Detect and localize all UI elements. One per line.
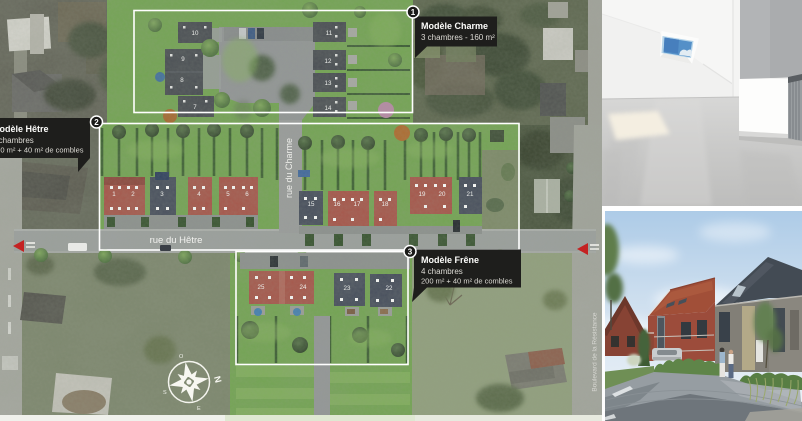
svg-text:Boulevard de la Résistance: Boulevard de la Résistance (592, 312, 599, 392)
svg-text:Modèle Frêne: Modèle Frêne (421, 255, 479, 265)
svg-text:E: E (197, 406, 201, 412)
svg-text:rue du Charme: rue du Charme (284, 138, 294, 198)
svg-text:rue du Hêtre: rue du Hêtre (150, 235, 203, 246)
svg-text:200 m² + 40 m² de combles: 200 m² + 40 m² de combles (0, 146, 84, 155)
svg-text:4 chambres: 4 chambres (421, 267, 463, 276)
svg-text:200 m² + 40 m² de combles: 200 m² + 40 m² de combles (421, 277, 513, 286)
svg-text:4 chambres: 4 chambres (0, 136, 34, 145)
svg-text:2: 2 (94, 118, 99, 127)
svg-text:S: S (163, 390, 167, 396)
svg-text:Modèle Hêtre: Modèle Hêtre (0, 124, 49, 134)
svg-text:3: 3 (408, 248, 413, 257)
svg-text:Modèle Charme: Modèle Charme (421, 21, 488, 31)
svg-text:O: O (179, 354, 184, 360)
svg-text:3 chambres - 160 m²: 3 chambres - 160 m² (421, 33, 495, 42)
svg-text:1: 1 (411, 8, 416, 17)
